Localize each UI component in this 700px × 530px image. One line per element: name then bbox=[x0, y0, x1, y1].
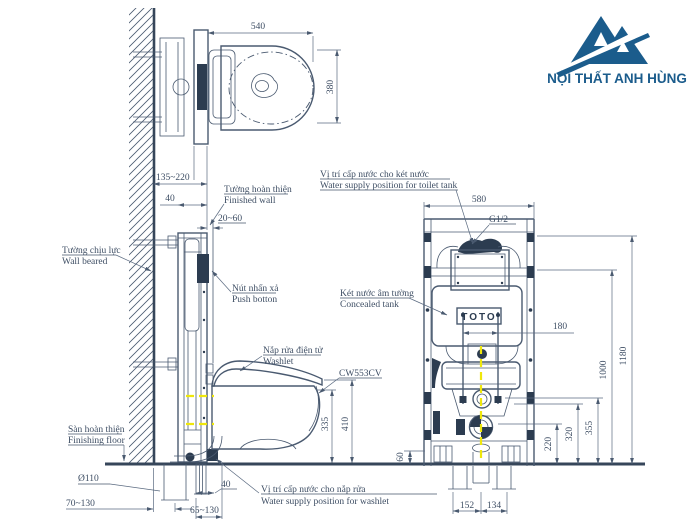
plan-bracket bbox=[160, 38, 184, 136]
supply-pipe bbox=[196, 464, 206, 494]
dim-h220: 220 bbox=[544, 437, 554, 452]
top-view: 540 380 bbox=[160, 22, 341, 144]
brand-logo: NỘI THẤT ANH HÙNG bbox=[547, 16, 687, 86]
rail-bracket bbox=[432, 358, 441, 388]
technical-drawing: 540 380 135~220 40 20~60 bbox=[0, 0, 700, 530]
label-concealed-tank-vi: Két nước âm tường bbox=[340, 289, 414, 299]
toilet-profile: 335 410 bbox=[186, 361, 356, 463]
dim-bowl-height: 335 bbox=[321, 417, 331, 432]
dim-bolt-spacing: 180 bbox=[553, 322, 568, 332]
label-washlet-supply-en: Water supply position for washlet bbox=[261, 496, 389, 507]
label-washlet-supply-vi: Vị trí cấp nước cho nắp rửa bbox=[261, 484, 366, 495]
label-finishing-floor-en: Finishing floor bbox=[68, 435, 126, 446]
plan-bowl-rim bbox=[229, 52, 313, 124]
foot-right bbox=[502, 446, 520, 462]
dim-pipe-152: 152 bbox=[460, 501, 475, 511]
leg-bar bbox=[433, 411, 440, 434]
label-push-button-en: Push botton bbox=[232, 295, 277, 305]
dim-wall-clearance: 135~220 bbox=[156, 173, 190, 183]
dim-h355: 355 bbox=[585, 421, 595, 436]
dim-supply-offset: 40 bbox=[221, 480, 231, 490]
dim-lid-height: 410 bbox=[341, 417, 351, 432]
label-thread: G1/2 bbox=[489, 215, 508, 225]
label-push-button-vi: Nút nhấn xả bbox=[232, 283, 279, 294]
water-inlet bbox=[458, 239, 502, 254]
concealed-tank-side bbox=[185, 239, 199, 331]
dim-rail-depth: 40 bbox=[165, 194, 175, 204]
dim-h1180: 1180 bbox=[619, 346, 629, 365]
dim-finish-thickness: 20~60 bbox=[218, 214, 242, 224]
structural-wall bbox=[129, 8, 178, 464]
plan-push-button bbox=[197, 64, 207, 110]
dim-drain-dia: Ø110 bbox=[78, 474, 99, 484]
dim-top-depth: 380 bbox=[326, 80, 336, 95]
dim-pipe-134: 134 bbox=[487, 501, 502, 511]
label-finished-wall-en: Finished wall bbox=[224, 196, 276, 206]
dim-drain-offset: 70~130 bbox=[66, 499, 95, 509]
foot-left bbox=[434, 446, 452, 462]
label-finishing-floor-vi: Sàn hoàn thiện bbox=[68, 425, 125, 435]
dim-h320: 320 bbox=[565, 427, 575, 442]
wall-hatch bbox=[129, 8, 153, 464]
dim-top-width: 540 bbox=[251, 22, 266, 32]
front-frame bbox=[424, 219, 534, 466]
label-tank-supply-vi: Vị trí cấp nước cho két nước bbox=[320, 169, 429, 180]
label-wall-beared-vi: Tường chịu lực bbox=[62, 246, 121, 256]
dim-h1000: 1000 bbox=[599, 360, 609, 379]
brand-text: TOTO bbox=[461, 312, 496, 323]
label-wall-beared-en: Wall beared bbox=[62, 257, 108, 267]
label-model: CW553CV bbox=[339, 369, 382, 379]
label-tank-supply-en: Water supply position for toilet tank bbox=[320, 180, 457, 191]
dim-foot-height: 60 bbox=[396, 452, 406, 462]
label-finished-wall-vi: Tường hoàn thiện bbox=[224, 185, 292, 195]
push-button bbox=[197, 254, 209, 283]
label-washlet-vi: Nắp rửa điện tử bbox=[263, 345, 323, 356]
access-panel bbox=[451, 250, 509, 290]
front-view: 580 TOTO bbox=[396, 195, 637, 514]
label-washlet-en: Washlet bbox=[263, 357, 294, 367]
dim-frame-width: 580 bbox=[472, 195, 487, 205]
logo-icon bbox=[556, 16, 652, 77]
dim-supply-range: 65~130 bbox=[190, 506, 219, 516]
logo-title: NỘI THẤT ANH HÙNG bbox=[547, 71, 687, 86]
label-concealed-tank-en: Concealed tank bbox=[340, 300, 399, 310]
